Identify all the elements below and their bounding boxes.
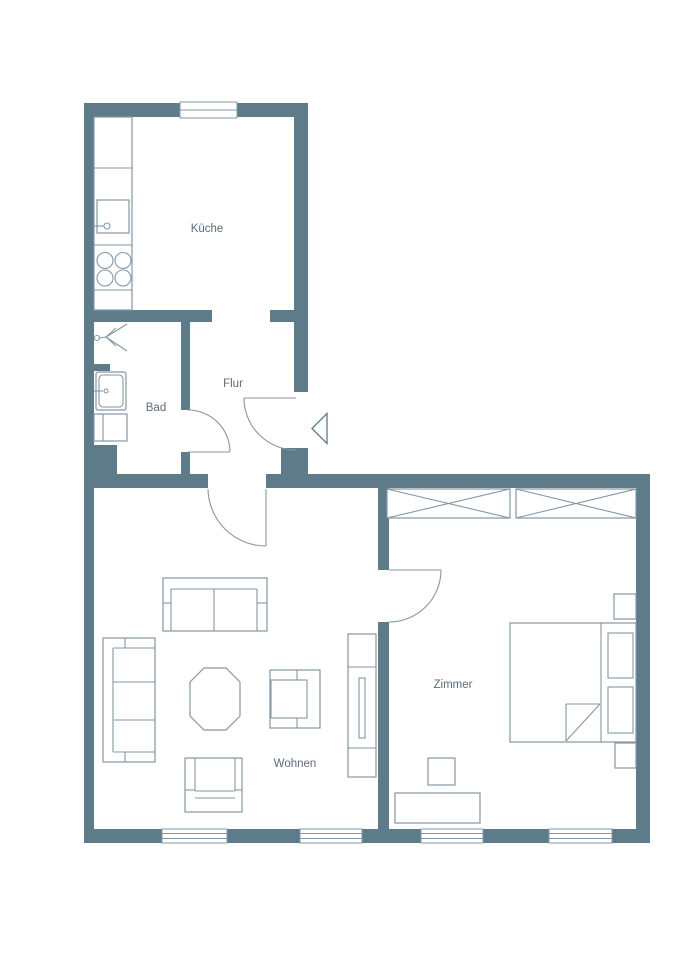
sofa-icon [103,638,155,762]
living-room-furniture [103,578,376,812]
wall-lower-top-b [266,474,650,488]
kitchen-fixtures [94,117,132,310]
wall-lower-top-a [84,474,208,488]
wall-right-lower [636,474,650,843]
wall-bad-chunk [94,445,117,474]
kitchen-sink-icon [94,200,129,233]
tv-board-icon [348,634,376,777]
window-icon [421,829,483,843]
room-label-zimmer: Zimmer [434,679,473,691]
room-label-flur: Flur [223,378,243,390]
washbasin-icon [94,372,126,410]
shower-wall-stub [94,364,110,371]
bathroom-fixtures [94,324,127,441]
wardrobe-icon [387,489,510,518]
wall-kitchen-south-a [94,310,212,322]
nightstand-icon [614,594,636,619]
desk-chair-icon [428,758,455,785]
entrance-arrow-icon [312,414,327,444]
wall-bad-flur-stub [181,452,190,474]
wall-right-upper [294,117,308,392]
door-swing-icon [188,410,230,452]
floor-plan-page: Küche Bad Flur Wohnen Zimmer [0,0,679,960]
wall-wohnen-zimmer-b [378,622,389,829]
room-label-bad: Bad [146,402,166,414]
window-icon [549,829,612,843]
floor-plan: Küche Bad Flur Wohnen Zimmer [0,0,679,960]
bed-icon [510,623,636,742]
toilet-icon [94,414,127,441]
door-swing-icon [244,398,296,450]
window-icon [300,829,362,843]
wall-kitchen-south-b [270,310,294,322]
armchair-icon [270,670,320,728]
window-icon [180,102,237,118]
sofa-icon [163,578,267,631]
wall-bad-flur [181,322,190,410]
wall-entrance-block [281,448,308,474]
wardrobe-icon [516,489,636,518]
room-label-kueche: Küche [191,223,224,235]
coffee-table-icon [190,668,240,730]
armchair-icon [185,758,242,812]
desk-icon [395,793,480,823]
wall-left [84,103,94,843]
room-label-wohnen: Wohnen [274,758,317,770]
door-swing-icon [208,489,266,546]
nightstand-icon [615,743,636,768]
bedroom-furniture [387,489,636,823]
window-icon [162,829,227,843]
door-swing-icon [389,570,441,622]
shower-icon [95,324,128,351]
